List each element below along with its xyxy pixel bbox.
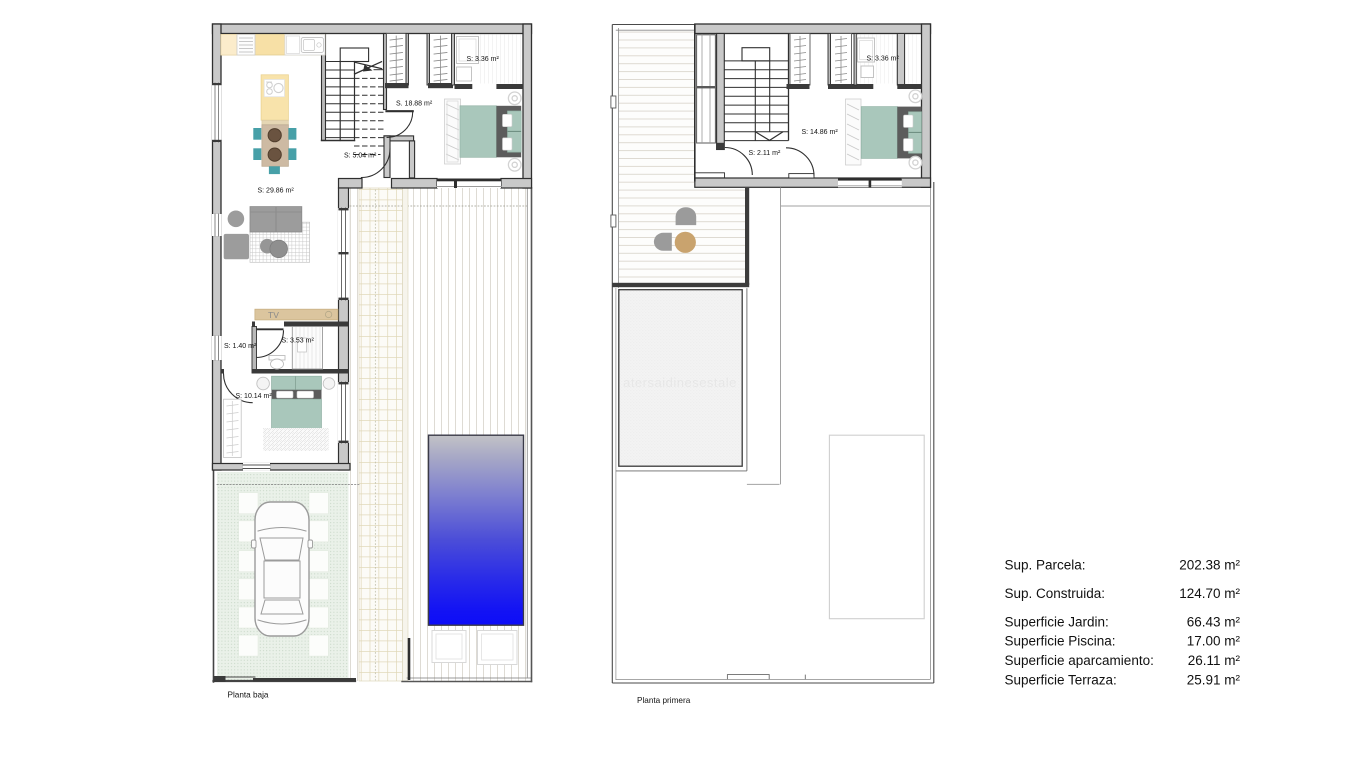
svg-text:202.38 m²: 202.38 m² — [1179, 558, 1240, 573]
svg-text:66.43 m²: 66.43 m² — [1187, 615, 1241, 630]
svg-text:17.00 m²: 17.00 m² — [1187, 634, 1241, 649]
svg-text:S: 3.53 m²: S: 3.53 m² — [282, 338, 315, 345]
svg-text:TV: TV — [268, 310, 279, 320]
svg-text:124.70 m²: 124.70 m² — [1179, 586, 1240, 601]
svg-text:Superficie Jardin:: Superficie Jardin: — [1005, 615, 1109, 630]
svg-text:Planta baja: Planta baja — [228, 690, 269, 699]
svg-text:S: 2.11 m²: S: 2.11 m² — [749, 150, 781, 157]
svg-text:26.11 m²: 26.11 m² — [1188, 653, 1241, 668]
svg-text:Superficie Terraza:: Superficie Terraza: — [1005, 673, 1117, 688]
svg-text:S: 29.86 m²: S: 29.86 m² — [258, 188, 295, 195]
svg-text:atersaidinesestale: atersaidinesestale — [623, 375, 737, 390]
svg-text:S: 1.40 m²: S: 1.40 m² — [224, 343, 257, 350]
svg-text:S: 3.36 m²: S: 3.36 m² — [467, 56, 500, 63]
svg-text:S. 18.88 m²: S. 18.88 m² — [396, 101, 433, 108]
svg-text:Planta primera: Planta primera — [637, 696, 691, 705]
svg-text:25.91 m²: 25.91 m² — [1187, 673, 1241, 688]
svg-text:S: 10.14 m²: S: 10.14 m² — [236, 393, 273, 400]
svg-text:Superficie aparcamiento:: Superficie aparcamiento: — [1005, 653, 1154, 668]
svg-text:S: 5.04 m²: S: 5.04 m² — [344, 153, 377, 160]
svg-text:S: 3.36 m²: S: 3.36 m² — [867, 56, 900, 63]
svg-text:Sup. Construida:: Sup. Construida: — [1005, 586, 1106, 601]
svg-text:S: 14.86 m²: S: 14.86 m² — [802, 129, 839, 136]
svg-text:Sup. Parcela:: Sup. Parcela: — [1005, 558, 1086, 573]
svg-text:Superficie Piscina:: Superficie Piscina: — [1005, 634, 1116, 649]
